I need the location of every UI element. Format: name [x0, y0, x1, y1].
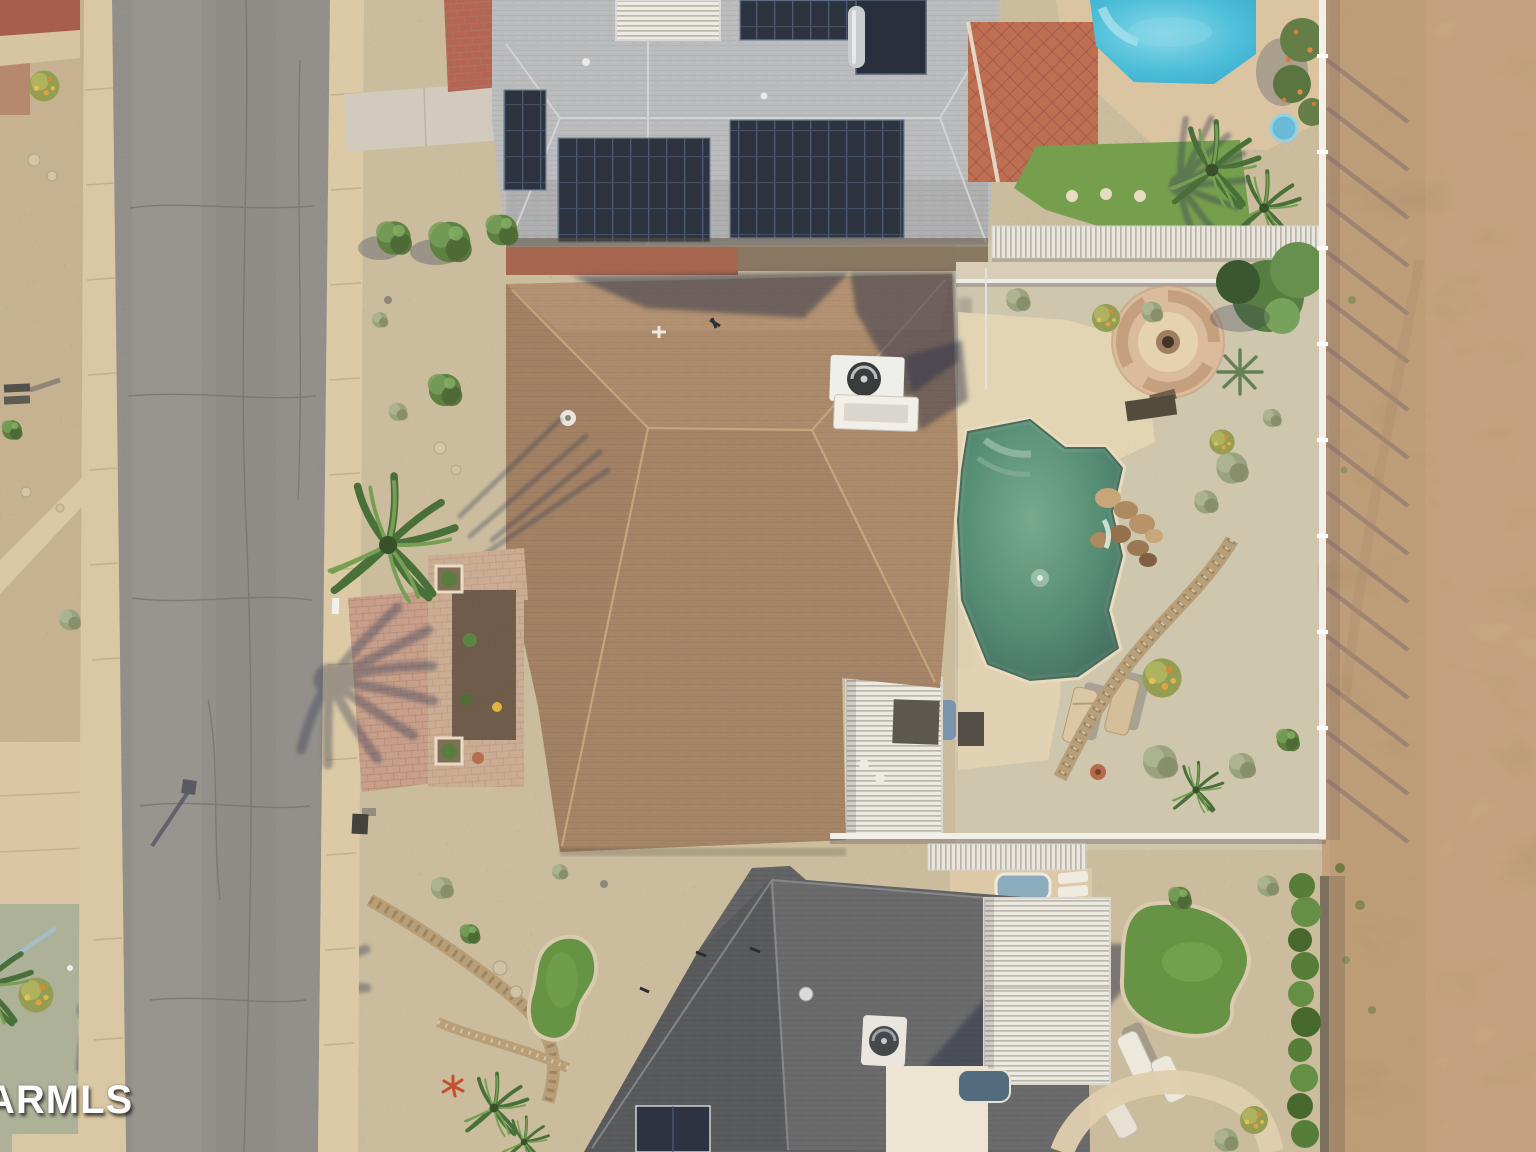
aerial-photo: ARMLS — [0, 0, 1536, 1152]
aerial-scene — [0, 0, 1536, 1152]
photo-tone-overlay — [0, 0, 1536, 1152]
mls-watermark: ARMLS — [0, 1078, 133, 1123]
